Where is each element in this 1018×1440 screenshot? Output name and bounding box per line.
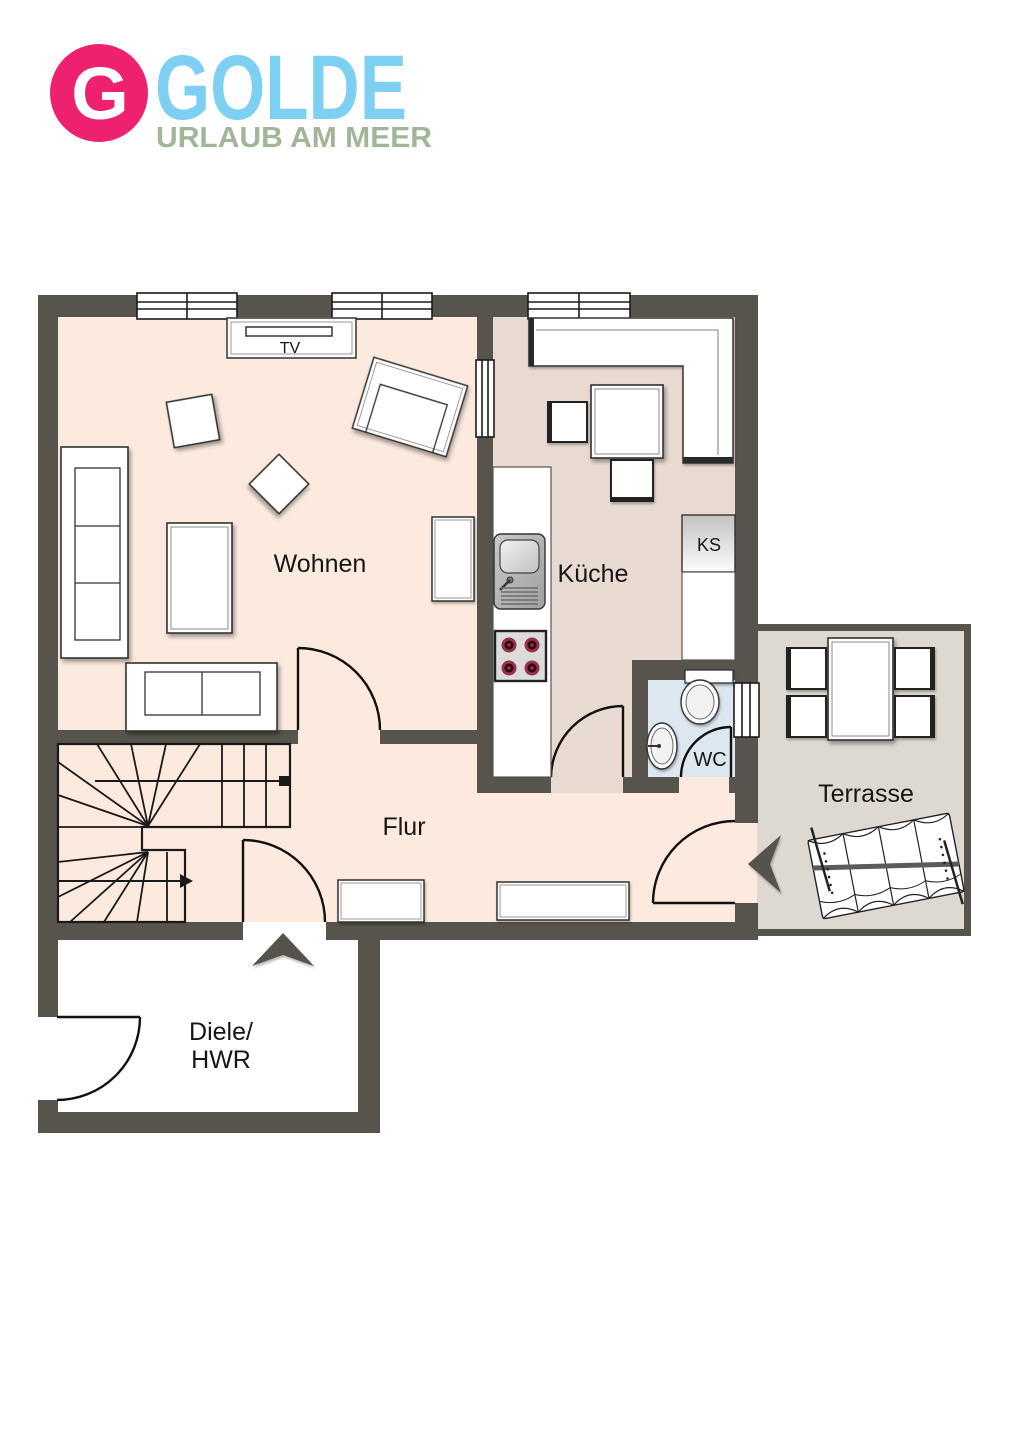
kitchen-counter-right <box>682 572 735 660</box>
label-fridge: KS <box>697 535 721 555</box>
window-living-2 <box>332 293 432 319</box>
sofa-three-seat <box>61 447 128 658</box>
kitchen-stool-bottom <box>611 460 653 501</box>
kitchen-stool-left <box>548 402 587 442</box>
label-terrace: Terrasse <box>818 780 914 808</box>
logo-badge-letter: G <box>71 52 129 135</box>
wall-terrace-bottom <box>757 929 971 936</box>
label-utility-line1: Diele/ <box>189 1018 253 1046</box>
wall-south-left <box>38 922 243 940</box>
opening-living <box>298 730 380 744</box>
hall-sideboard-2 <box>497 882 629 920</box>
label-living: Wohnen <box>274 550 367 578</box>
label-kitchen: Küche <box>558 560 629 588</box>
window-kitchen <box>528 293 630 319</box>
label-utility-line2: HWR <box>191 1046 251 1074</box>
label-wc: WC <box>693 749 726 771</box>
sideboard-living <box>432 517 474 601</box>
terrace-chair-bottom-right <box>895 696 934 737</box>
window-interior-living-kitchen <box>476 360 494 437</box>
floor-plan-drawing: G GOLDE URLAUB AM MEER <box>0 0 1018 1440</box>
wall-wc-west <box>632 660 648 777</box>
wall-east <box>735 295 758 823</box>
wall-living-kitchen-upper <box>477 315 493 360</box>
tv-screen <box>246 327 332 336</box>
logo-tagline-text: URLAUB AM MEER <box>156 122 432 154</box>
logo: G GOLDE URLAUB AM MEER <box>50 37 432 154</box>
wall-wc-south-right <box>729 777 735 793</box>
window-living-1 <box>137 293 237 319</box>
wall-east-stub <box>735 903 758 940</box>
label-tv: TV <box>280 340 301 357</box>
wall-utility-bottom <box>38 1112 380 1133</box>
wall-left-upper <box>38 295 58 1017</box>
stool-rotated <box>166 394 219 447</box>
wall-terrace-right <box>964 624 971 936</box>
hall-sideboard-1 <box>338 880 424 922</box>
coffee-table <box>167 523 232 633</box>
wall-terrace-top <box>757 624 971 631</box>
wall-south-right <box>326 922 758 940</box>
wall-kitchen-south <box>477 777 551 793</box>
kitchen-sink <box>494 534 545 609</box>
terrace-chair-top-right <box>895 648 934 689</box>
wall-wc-south-left <box>623 777 679 793</box>
terrace-chair-bottom-left <box>787 696 826 737</box>
terrace-table <box>828 638 893 740</box>
opening-wc <box>679 777 729 793</box>
window-wc-terrace <box>734 683 759 737</box>
kitchen-stove <box>495 631 546 681</box>
terrace-chair-top-left <box>787 648 826 689</box>
kitchen-table <box>591 385 663 458</box>
opening-entry <box>38 1017 58 1100</box>
wall-living-kitchen-lower <box>477 437 493 777</box>
wall-living-hall-right <box>380 730 493 744</box>
label-hall: Flur <box>382 813 425 841</box>
wall-utility-right <box>358 940 380 1112</box>
wall-living-hall-left <box>58 730 298 744</box>
opening-kitchen <box>551 777 623 793</box>
sofa-two-seat <box>126 663 277 731</box>
floor-plan-page: G GOLDE URLAUB AM MEER <box>0 0 1018 1440</box>
wc-sink <box>647 723 677 769</box>
kitchen-counter <box>493 467 551 777</box>
